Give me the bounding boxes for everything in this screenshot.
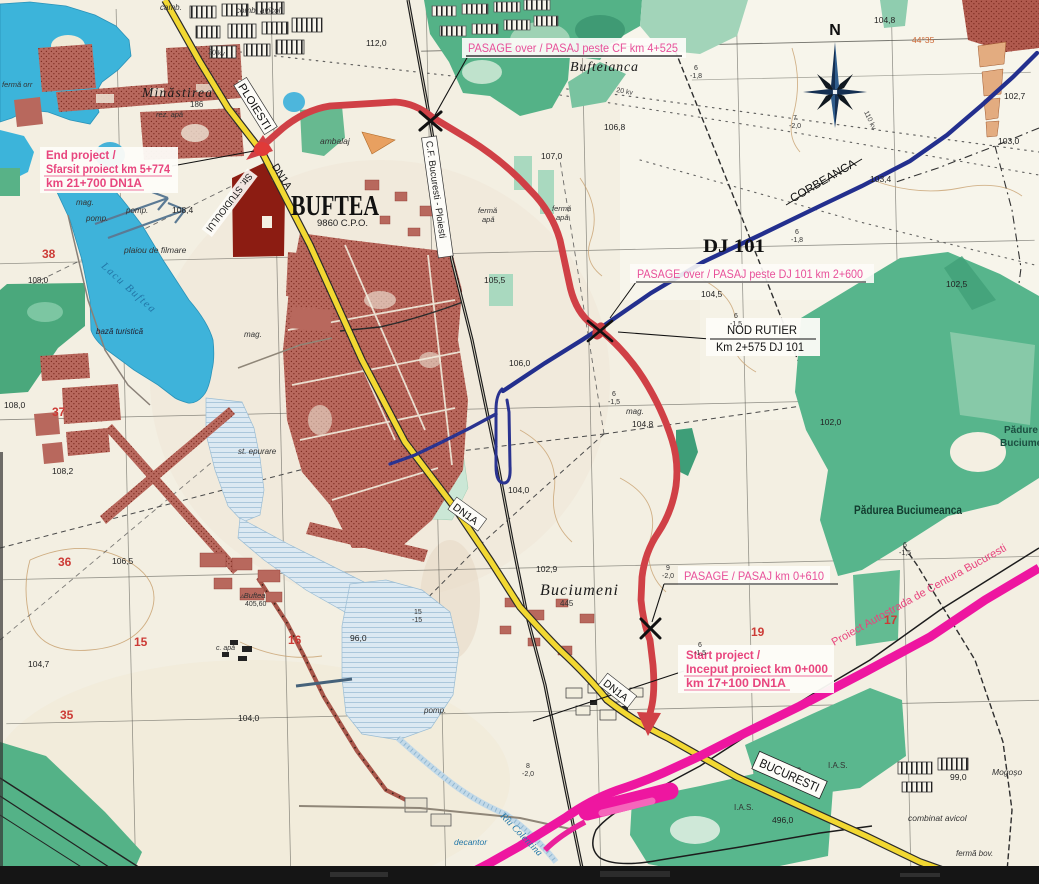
- svg-text:-1,5: -1,5: [694, 650, 706, 657]
- svg-text:-2,0: -2,0: [522, 771, 534, 778]
- svg-text:fermă: fermă: [552, 204, 571, 213]
- svg-text:38: 38: [42, 247, 56, 261]
- svg-text:st. epurare: st. epurare: [238, 447, 277, 456]
- svg-text:PASAGE over / PASAJ peste DJ 1: PASAGE over / PASAJ peste DJ 101 km 2+60…: [637, 267, 863, 281]
- svg-text:107,0: 107,0: [541, 151, 563, 161]
- svg-text:ambalaj: ambalaj: [320, 136, 351, 146]
- svg-text:405,60: 405,60: [245, 601, 267, 608]
- svg-text:104,8: 104,8: [632, 419, 654, 429]
- svg-text:105,5: 105,5: [484, 275, 506, 285]
- svg-text:104,0: 104,0: [238, 713, 260, 723]
- svg-text:Pădurea Buciumeanca: Pădurea Buciumeanca: [854, 505, 963, 517]
- svg-text:Minăstirea: Minăstirea: [141, 85, 212, 100]
- svg-text:6: 6: [698, 642, 702, 649]
- svg-text:106,8: 106,8: [604, 122, 626, 132]
- svg-text:99,0: 99,0: [950, 772, 967, 782]
- svg-text:PASAGE over / PASAJ peste CF k: PASAGE over / PASAJ peste CF km 4+525: [468, 41, 678, 55]
- svg-text:rez. apă: rez. apă: [156, 110, 183, 119]
- svg-text:combinat avicol: combinat avicol: [908, 813, 968, 823]
- svg-text:Buciumeni: Buciumeni: [540, 582, 618, 599]
- svg-text:104,7: 104,7: [28, 659, 50, 669]
- svg-text:Mogoșo: Mogoșo: [992, 767, 1023, 777]
- svg-text:17: 17: [884, 613, 898, 627]
- svg-text:DJ 101: DJ 101: [703, 236, 765, 257]
- svg-text:102,5: 102,5: [946, 279, 968, 289]
- svg-text:pomp.: pomp.: [423, 706, 446, 715]
- svg-text:km 17+100 DN1A: km 17+100 DN1A: [686, 678, 786, 690]
- svg-text:N: N: [829, 22, 841, 39]
- svg-text:-1,5: -1,5: [608, 399, 620, 406]
- svg-text:103,4: 103,4: [870, 174, 892, 184]
- svg-text:36: 36: [58, 555, 72, 569]
- svg-text:-1,5: -1,5: [730, 321, 742, 328]
- svg-text:plaiou de filmare: plaiou de filmare: [123, 245, 187, 255]
- svg-text:6: 6: [694, 65, 698, 72]
- svg-text:103,0: 103,0: [998, 136, 1020, 146]
- svg-text:108,0: 108,0: [4, 400, 26, 410]
- svg-text:9: 9: [666, 565, 670, 572]
- svg-text:8: 8: [526, 763, 530, 770]
- svg-text:6: 6: [612, 391, 616, 398]
- svg-text:▵Buftea: ▵Buftea: [240, 591, 265, 600]
- svg-text:35: 35: [60, 708, 74, 722]
- svg-text:-1,8: -1,8: [791, 237, 803, 244]
- svg-text:fermă bov.: fermă bov.: [956, 849, 993, 858]
- svg-text:decantor: decantor: [454, 837, 488, 847]
- svg-text:bază turistică: bază turistică: [96, 327, 144, 336]
- svg-text:c. apă: c. apă: [216, 645, 235, 652]
- svg-text:mag.: mag.: [244, 330, 262, 339]
- svg-text:-2,0: -2,0: [662, 573, 674, 580]
- svg-text:186: 186: [190, 100, 204, 109]
- svg-text:fermă orr: fermă orr: [2, 80, 33, 89]
- svg-text:15: 15: [134, 635, 148, 649]
- svg-text:Pădure: Pădure: [1004, 425, 1038, 436]
- svg-text:comb. avicol: comb. avicol: [236, 6, 281, 15]
- svg-text:Km 2+575 DJ 101: Km 2+575 DJ 101: [716, 342, 804, 354]
- svg-text:108,4: 108,4: [172, 205, 194, 215]
- svg-text:Buciumea: Buciumea: [1000, 438, 1039, 449]
- svg-text:104,0: 104,0: [508, 485, 530, 495]
- svg-text:fermă: fermă: [478, 206, 497, 215]
- svg-text:PASAGE / PASAJ km 0+610: PASAGE / PASAJ km 0+610: [684, 569, 824, 583]
- svg-text:106,0: 106,0: [509, 358, 531, 368]
- svg-text:19: 19: [751, 625, 765, 639]
- svg-text:Bufteianca: Bufteianca: [570, 60, 638, 75]
- svg-text:mag.: mag.: [76, 198, 94, 207]
- svg-text:6: 6: [795, 229, 799, 236]
- svg-text:End project /: End project /: [46, 150, 116, 162]
- svg-text:6: 6: [903, 542, 907, 549]
- svg-text:9860 C.P.O.: 9860 C.P.O.: [317, 218, 368, 229]
- svg-text:104,8: 104,8: [874, 15, 896, 25]
- svg-text:Inceput proiect km 0+000: Inceput proiect km 0+000: [686, 664, 828, 676]
- svg-text:mag.: mag.: [626, 407, 644, 416]
- svg-text:apă: apă: [556, 213, 569, 222]
- svg-text:102,9: 102,9: [536, 564, 558, 574]
- svg-text:apă: apă: [482, 215, 495, 224]
- svg-text:Sfarsit proiect km 5+774: Sfarsit proiect km 5+774: [46, 164, 171, 176]
- svg-text:6: 6: [734, 313, 738, 320]
- svg-text:camb.: camb.: [160, 3, 182, 12]
- svg-text:16: 16: [288, 633, 302, 647]
- svg-text:I.A.S.: I.A.S.: [828, 761, 848, 770]
- svg-text:44°35: 44°35: [912, 35, 935, 45]
- svg-text:445: 445: [560, 599, 574, 608]
- svg-text:pomp.: pomp.: [125, 206, 148, 215]
- svg-text:102,7: 102,7: [1004, 91, 1026, 101]
- svg-text:7: 7: [793, 115, 797, 122]
- svg-text:km 21+700 DN1A: km 21+700 DN1A: [46, 178, 142, 190]
- svg-text:96,0: 96,0: [350, 633, 367, 643]
- svg-text:108,0: 108,0: [28, 276, 49, 285]
- svg-text:-2,0: -2,0: [789, 123, 801, 130]
- svg-text:108,2: 108,2: [52, 466, 74, 476]
- svg-text:102,0: 102,0: [820, 417, 842, 427]
- svg-text:37: 37: [52, 405, 66, 419]
- svg-text:112,0: 112,0: [366, 38, 387, 48]
- svg-text:pomp.: pomp.: [85, 214, 108, 223]
- svg-text:106,5: 106,5: [112, 556, 134, 566]
- svg-text:104,5: 104,5: [701, 289, 723, 299]
- svg-text:15: 15: [414, 609, 422, 616]
- svg-text:-1,5: -1,5: [899, 550, 911, 557]
- svg-text:-15: -15: [412, 617, 422, 624]
- svg-text:496,0: 496,0: [772, 815, 794, 825]
- svg-text:-1,8: -1,8: [690, 73, 702, 80]
- svg-text:I.A.S.: I.A.S.: [734, 803, 754, 812]
